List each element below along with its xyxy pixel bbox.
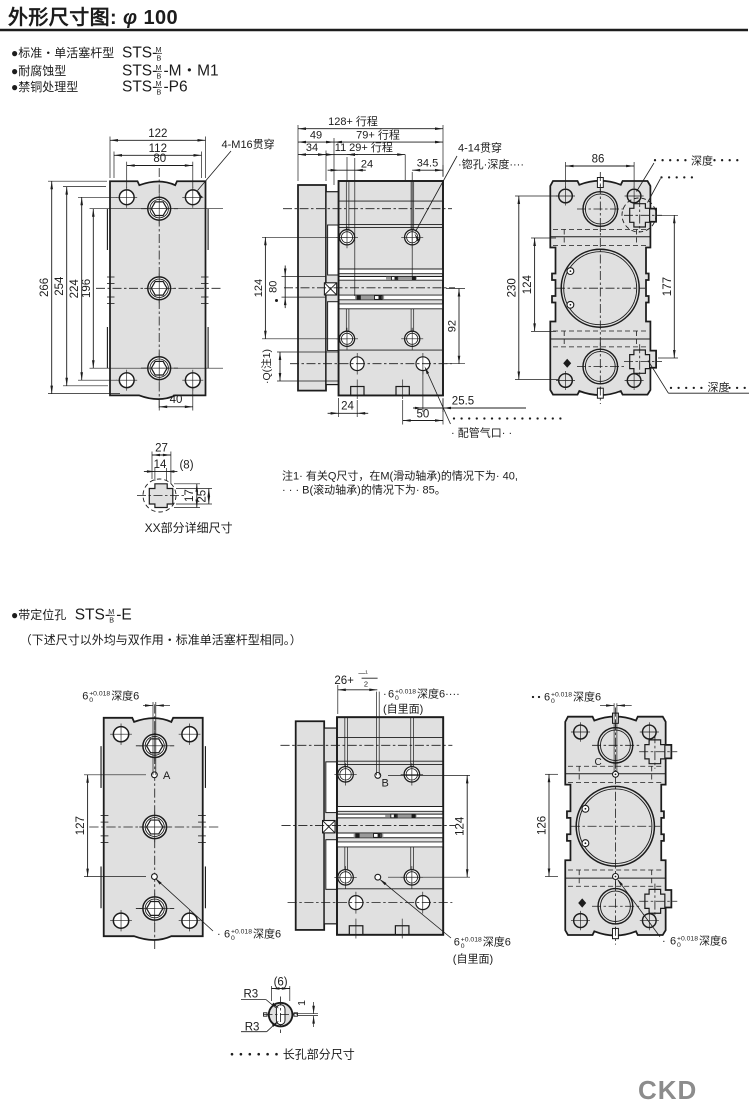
svg-text:0: 0 — [231, 935, 235, 942]
svg-text:0: 0 — [89, 697, 93, 704]
svg-text:26+: 26+ — [334, 675, 354, 687]
svg-text:注1· 有关Q尺寸，在M(滑动轴承)的情况下为· 40,: 注1· 有关Q尺寸，在M(滑动轴承)的情况下为· 40, — [282, 469, 518, 483]
svg-text:M: M — [156, 45, 162, 54]
svg-text:34.5: 34.5 — [417, 158, 438, 170]
svg-text:—¹: —¹ — [358, 671, 368, 678]
svg-text:深度6····: 深度6···· — [417, 687, 460, 701]
svg-text:深度6: 深度6 — [111, 689, 139, 703]
svg-text:B: B — [157, 88, 162, 97]
svg-text:B: B — [109, 616, 114, 625]
svg-text:M: M — [156, 79, 162, 88]
svg-text:127: 127 — [75, 816, 87, 835]
svg-text:4-M16贯穿: 4-M16贯穿 — [222, 137, 275, 151]
svg-text:49: 49 — [310, 130, 322, 142]
svg-text:深度: 深度 — [691, 153, 713, 167]
svg-text:STS-: STS- — [122, 63, 157, 80]
svg-text:M: M — [108, 607, 114, 616]
svg-text:24: 24 — [341, 401, 354, 413]
svg-text:1: 1 — [296, 1000, 308, 1006]
svg-text:126: 126 — [537, 816, 549, 835]
svg-text:· 配管气口· ·: · 配管气口· · — [451, 426, 512, 440]
svg-text:B: B — [382, 778, 389, 790]
svg-text:6: 6 — [544, 692, 550, 704]
svg-text:(自里面): (自里面) — [453, 953, 493, 966]
svg-text:6: 6 — [670, 936, 676, 948]
svg-text:254: 254 — [54, 276, 66, 296]
svg-text:0: 0 — [677, 942, 681, 949]
svg-text:R3: R3 — [244, 989, 259, 1001]
svg-text:C: C — [595, 757, 602, 768]
svg-text:40: 40 — [170, 394, 183, 406]
svg-text:· · · B(滚动轴承)的情况下为· 85。: · · · B(滚动轴承)的情况下为· 85。 — [282, 483, 446, 497]
svg-text:A: A — [163, 770, 171, 782]
svg-text:34: 34 — [306, 142, 318, 154]
svg-text:M: M — [156, 63, 162, 72]
svg-text:·Q(注1): ·Q(注1) — [260, 349, 273, 384]
svg-text:STS-: STS- — [122, 45, 157, 62]
svg-text:B: B — [157, 54, 162, 63]
svg-text:深度: 深度 — [708, 380, 730, 394]
svg-text:CKD: CKD — [638, 1075, 697, 1103]
svg-text:230: 230 — [506, 278, 518, 297]
svg-text:11: 11 — [335, 142, 346, 154]
svg-text:-M・M1: -M・M1 — [164, 63, 219, 80]
svg-text:80: 80 — [153, 153, 166, 165]
svg-text:-E: -E — [116, 607, 132, 624]
svg-text:长孔部分尺寸: 长孔部分尺寸 — [283, 1047, 355, 1062]
svg-text:深度6: 深度6 — [483, 935, 511, 949]
svg-text:4-14贯穿: 4-14贯穿 — [458, 141, 502, 155]
svg-text:6: 6 — [454, 937, 460, 949]
svg-text:124: 124 — [522, 275, 534, 295]
svg-text:(6): (6) — [274, 977, 288, 989]
svg-text:●带定位孔: ●带定位孔 — [11, 607, 66, 622]
svg-text:·: · — [217, 929, 221, 941]
svg-text:深度6: 深度6 — [699, 934, 727, 948]
svg-text:●耐腐蚀型: ●耐腐蚀型 — [11, 63, 66, 78]
svg-text:(自里面): (自里面) — [383, 703, 423, 716]
svg-text:29+ 行程: 29+ 行程 — [349, 141, 393, 154]
svg-text:6: 6 — [224, 929, 230, 941]
svg-text:86: 86 — [592, 153, 605, 165]
svg-text:124: 124 — [455, 816, 467, 836]
svg-text:STS-: STS- — [75, 607, 110, 624]
svg-text:14: 14 — [154, 459, 167, 471]
svg-text:224: 224 — [69, 279, 81, 299]
svg-text:25.5: 25.5 — [452, 396, 474, 408]
svg-text:128+ 行程: 128+ 行程 — [328, 115, 378, 128]
svg-text:122: 122 — [148, 128, 167, 140]
svg-text:0: 0 — [461, 943, 465, 950]
svg-text:(8): (8) — [179, 460, 193, 472]
svg-text:24: 24 — [361, 159, 373, 171]
svg-text:196: 196 — [81, 279, 93, 298]
svg-text:·锪孔·深度····: ·锪孔·深度···· — [458, 157, 524, 171]
svg-text:177: 177 — [662, 277, 674, 296]
svg-text:-P6: -P6 — [164, 79, 188, 96]
svg-text:深度6: 深度6 — [253, 927, 281, 941]
svg-text:（下述尺寸以外均与双作用・标准单活塞杆型相同。）: （下述尺寸以外均与双作用・标准单活塞杆型相同。） — [20, 632, 302, 647]
svg-text:17: 17 — [184, 489, 196, 502]
svg-text:深度6: 深度6 — [573, 690, 601, 704]
svg-text:·: · — [662, 936, 666, 948]
svg-text:80: 80 — [268, 281, 280, 293]
svg-text:79+ 行程: 79+ 行程 — [356, 129, 400, 142]
svg-text:266: 266 — [39, 278, 51, 297]
svg-text:·: · — [383, 689, 387, 701]
svg-text:25: 25 — [197, 490, 209, 503]
svg-text:2: 2 — [364, 680, 368, 689]
svg-text:27: 27 — [155, 443, 168, 455]
svg-text:外形尺寸图: φ 100: 外形尺寸图: φ 100 — [8, 5, 178, 29]
svg-text:0: 0 — [395, 695, 399, 702]
svg-text:0: 0 — [551, 698, 555, 705]
svg-text:6: 6 — [388, 689, 394, 701]
svg-text:124: 124 — [253, 279, 265, 297]
svg-text:STS-: STS- — [122, 79, 157, 96]
svg-text:92: 92 — [447, 320, 459, 332]
svg-text:●标准・单活塞杆型: ●标准・单活塞杆型 — [11, 45, 114, 60]
svg-text:●禁铜处理型: ●禁铜处理型 — [11, 79, 78, 94]
svg-text:6: 6 — [82, 691, 88, 703]
svg-text:XX部分详细尺寸: XX部分详细尺寸 — [145, 520, 233, 535]
